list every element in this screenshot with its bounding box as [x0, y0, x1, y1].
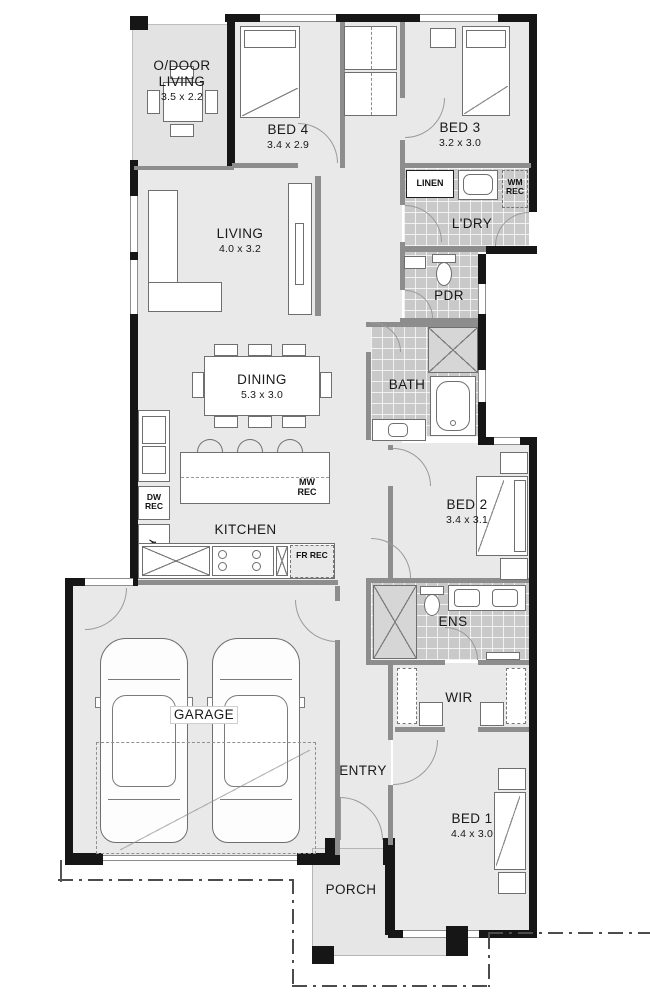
bath-mat-icon — [486, 652, 520, 660]
robe-cupboard-icon — [344, 26, 397, 70]
bed-fold-line — [464, 86, 508, 114]
wall — [65, 578, 87, 586]
room-label-bed1: BED 1 4.4 x 3.0 — [434, 811, 510, 841]
odoor-name: O/DOOR LIVING — [145, 58, 219, 90]
porch-name: PORCH — [320, 882, 382, 898]
shower-icon — [373, 585, 417, 659]
sofa-icon — [148, 282, 222, 312]
interior-wall — [395, 727, 445, 732]
bedside-table-icon — [498, 768, 526, 790]
room-label-bath: BATH — [379, 377, 435, 393]
porch-pier — [312, 946, 334, 964]
drain-icon — [450, 420, 456, 426]
lot-boundary — [292, 879, 294, 987]
wall — [130, 314, 138, 586]
bedside-table-icon — [500, 558, 528, 580]
basin-icon — [454, 589, 480, 607]
room-label-porch: PORCH — [320, 882, 382, 898]
odoor-dims: 3.5 x 2.2 — [145, 91, 219, 104]
pillow-icon — [466, 30, 506, 48]
bench-hatch — [142, 546, 210, 576]
floor-plan: LINEN WM REC MW REC DW REC PTY FR REC — [0, 0, 650, 1000]
robe-cupboard-icon — [344, 72, 397, 116]
interior-wall — [366, 660, 445, 665]
wall — [478, 254, 486, 284]
tv-icon — [295, 223, 304, 285]
wall — [130, 252, 138, 260]
bench-hatch — [276, 546, 288, 576]
door-opening — [85, 578, 133, 586]
pillow-icon — [514, 480, 526, 552]
interior-wall — [134, 166, 234, 170]
lot-boundary — [58, 879, 294, 881]
room-label-wir: WIR — [429, 690, 489, 706]
window — [478, 370, 486, 402]
bed4-name: BED 4 — [250, 122, 326, 138]
wall — [385, 845, 395, 935]
toilet-bowl-icon — [436, 262, 452, 286]
kitchen-name: KITCHEN — [203, 522, 288, 538]
dw-rec-label: DW REC — [138, 493, 170, 512]
garage-door-panel — [103, 855, 297, 861]
burner-icon — [252, 550, 261, 559]
interior-wall — [366, 352, 371, 440]
bedside-table-icon — [498, 872, 526, 894]
garage-name: GARAGE — [171, 707, 237, 723]
window — [420, 14, 498, 22]
lot-boundary — [488, 934, 490, 987]
room-label-entry: ENTRY — [332, 763, 394, 779]
basin-icon — [492, 589, 518, 607]
chair-icon — [192, 372, 204, 398]
wall — [478, 314, 486, 370]
room-label-ldry: L'DRY — [442, 216, 502, 232]
interior-wall — [138, 580, 338, 585]
ldry-name: L'DRY — [442, 216, 502, 232]
dining-name: DINING — [222, 372, 302, 388]
interior-wall — [400, 163, 531, 168]
door-leaf — [340, 797, 341, 840]
wall — [498, 14, 537, 22]
room-label-living: LIVING 4.0 x 3.2 — [200, 226, 280, 256]
vanity-icon — [404, 256, 426, 269]
shower-icon — [428, 327, 478, 373]
window — [478, 284, 486, 314]
chair-icon — [214, 344, 238, 356]
robe-rail-icon — [506, 668, 526, 724]
toilet-bowl-icon — [424, 594, 440, 616]
burner-icon — [252, 562, 261, 571]
interior-wall — [232, 163, 298, 168]
chair-icon — [248, 344, 272, 356]
interior-wall — [335, 586, 340, 601]
garage-diagonal-line — [120, 750, 310, 850]
window — [494, 437, 520, 445]
chair-icon — [170, 124, 194, 137]
wall — [65, 853, 103, 865]
bed2-name: BED 2 — [430, 497, 504, 513]
survey-mark — [60, 860, 62, 882]
wall — [225, 14, 260, 22]
chair-icon — [282, 344, 306, 356]
wall — [65, 586, 73, 863]
room-label-bed3: BED 3 3.2 x 3.0 — [422, 120, 498, 150]
interior-wall — [478, 727, 529, 732]
interior-wall — [478, 660, 529, 665]
living-dims: 4.0 x 3.2 — [200, 243, 280, 256]
wall — [486, 246, 537, 254]
wall — [336, 14, 420, 22]
room-label-kitchen: KITCHEN — [203, 522, 288, 538]
wm-rec-label: WM REC — [500, 178, 530, 197]
fr-rec-label: FR REC — [295, 551, 329, 560]
window — [130, 260, 138, 314]
bed4-dims: 3.4 x 2.9 — [250, 139, 326, 152]
sink-bowl-icon — [142, 446, 166, 474]
entry-name: ENTRY — [332, 763, 394, 779]
living-name: LIVING — [200, 226, 280, 242]
burner-icon — [218, 550, 227, 559]
window — [260, 14, 336, 22]
wall — [529, 445, 537, 938]
trough-basin-icon — [463, 174, 493, 195]
chair-icon — [282, 416, 306, 428]
interior-wall — [400, 246, 486, 252]
pdr-name: PDR — [421, 288, 477, 304]
room-label-dining: DINING 5.3 x 3.0 — [222, 372, 302, 402]
dining-dims: 5.3 x 3.0 — [222, 389, 302, 402]
interior-wall — [315, 176, 321, 316]
bed3-name: BED 3 — [422, 120, 498, 136]
mw-rec-label: MW REC — [290, 478, 324, 498]
bath-name: BATH — [379, 377, 435, 393]
wall — [529, 22, 537, 212]
robe-rail-icon — [397, 668, 417, 724]
chair-icon — [214, 416, 238, 428]
linen-label: LINEN — [406, 179, 454, 189]
chair-icon — [248, 416, 272, 428]
interior-wall — [400, 22, 405, 98]
bed3-dims: 3.2 x 3.0 — [422, 137, 498, 150]
burner-icon — [218, 562, 227, 571]
ens-name: ENS — [425, 614, 481, 630]
pier — [130, 16, 148, 30]
wir-name: WIR — [429, 690, 489, 706]
room-label-garage: GARAGE — [170, 706, 238, 724]
bedside-table-icon — [500, 452, 528, 474]
pillow-icon — [244, 30, 296, 48]
lot-boundary — [292, 985, 490, 987]
bed1-dims: 4.4 x 3.0 — [434, 828, 510, 841]
interior-wall — [388, 665, 393, 740]
interior-wall — [366, 583, 371, 665]
porch-pier — [446, 926, 468, 956]
room-label-bed4: BED 4 3.4 x 2.9 — [250, 122, 326, 152]
interior-wall — [388, 785, 393, 845]
room-label-odoor: O/DOOR LIVING 3.5 x 2.2 — [145, 58, 219, 104]
sink-bowl-icon — [142, 416, 166, 444]
bedside-table-icon — [430, 28, 456, 48]
basin-icon — [388, 423, 408, 437]
lot-boundary — [488, 932, 650, 934]
room-label-pdr: PDR — [421, 288, 477, 304]
room-label-ens: ENS — [425, 614, 481, 630]
bed-fold-line — [242, 88, 298, 116]
bed1-name: BED 1 — [434, 811, 510, 827]
window — [130, 196, 138, 252]
room-label-bed2: BED 2 3.4 x 3.1 — [430, 497, 504, 527]
chair-icon — [320, 372, 332, 398]
wall — [227, 22, 235, 168]
bed2-dims: 3.4 x 3.1 — [430, 514, 504, 527]
interior-wall — [400, 168, 405, 205]
